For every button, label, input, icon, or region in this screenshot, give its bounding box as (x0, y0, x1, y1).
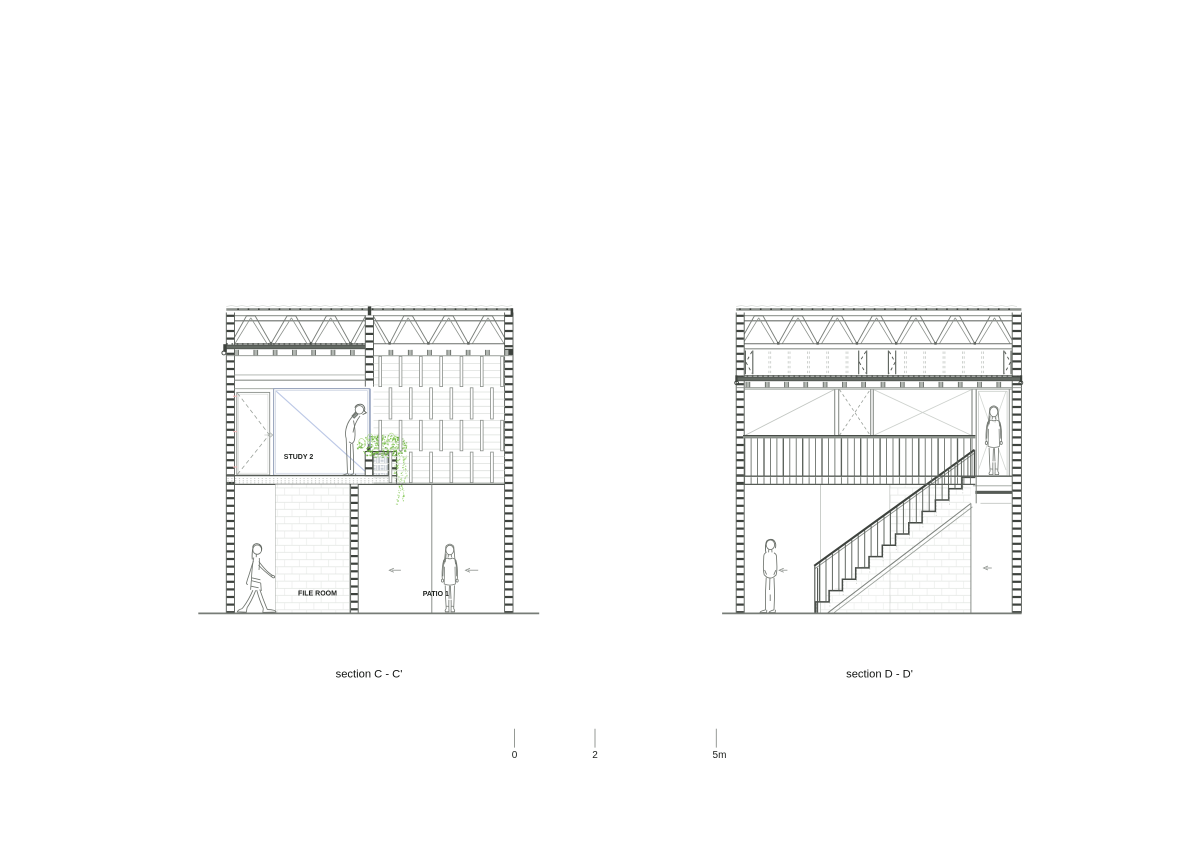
svg-text:section C - C': section C - C' (336, 669, 403, 681)
svg-text:FILE ROOM: FILE ROOM (298, 590, 337, 597)
svg-text:5m: 5m (713, 750, 727, 761)
svg-text:STUDY 2: STUDY 2 (284, 454, 314, 461)
svg-text:section D - D': section D - D' (846, 669, 913, 681)
svg-text:2: 2 (592, 750, 598, 761)
svg-text:0: 0 (512, 750, 518, 761)
